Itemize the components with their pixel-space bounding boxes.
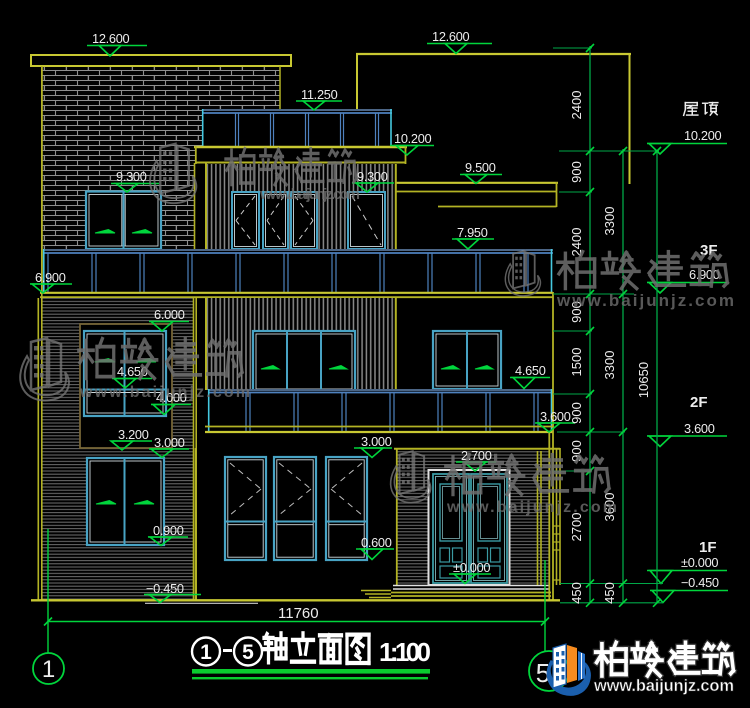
- svg-text:1:100: 1:100: [379, 637, 431, 667]
- svg-text:11.250: 11.250: [301, 87, 338, 102]
- svg-text:5: 5: [242, 641, 254, 664]
- svg-text:0.900: 0.900: [153, 523, 184, 538]
- svg-text:3.200: 3.200: [118, 427, 149, 442]
- svg-text:2400: 2400: [569, 91, 584, 120]
- svg-text:10.200: 10.200: [684, 128, 722, 143]
- svg-text:1500: 1500: [569, 348, 584, 377]
- svg-text:2F: 2F: [690, 394, 708, 411]
- svg-text:450: 450: [569, 582, 584, 604]
- svg-text:4.650: 4.650: [515, 363, 546, 378]
- svg-text:11760: 11760: [278, 605, 319, 622]
- svg-text:3.600: 3.600: [684, 421, 715, 436]
- svg-text:10650: 10650: [636, 362, 651, 398]
- svg-text:1F: 1F: [699, 539, 717, 556]
- svg-text:3300: 3300: [602, 351, 617, 380]
- svg-text:3.600: 3.600: [540, 409, 571, 424]
- svg-text:3300: 3300: [602, 207, 617, 236]
- svg-text:2700: 2700: [569, 513, 584, 542]
- svg-text:www.baijunjz.com: www.baijunjz.com: [593, 677, 734, 695]
- svg-text:6.900: 6.900: [35, 270, 66, 285]
- svg-text:www.baijunjz.com: www.baijunjz.com: [259, 186, 360, 203]
- svg-text:3.000: 3.000: [154, 435, 185, 450]
- svg-text:9.300: 9.300: [116, 169, 147, 184]
- svg-text:12.600: 12.600: [92, 31, 130, 46]
- svg-text:900: 900: [569, 161, 584, 183]
- svg-text:6.000: 6.000: [154, 307, 185, 322]
- svg-text:−0.450: −0.450: [681, 575, 719, 590]
- svg-text:1: 1: [42, 656, 55, 683]
- svg-text:450: 450: [602, 582, 617, 604]
- svg-text:±0.000: ±0.000: [681, 555, 718, 570]
- svg-text:9.500: 9.500: [465, 160, 496, 175]
- svg-text:3.000: 3.000: [361, 434, 392, 449]
- svg-text:0.600: 0.600: [361, 535, 392, 550]
- svg-text:±0.000: ±0.000: [453, 560, 490, 575]
- svg-text:9.300: 9.300: [357, 169, 388, 184]
- svg-text:1: 1: [200, 641, 212, 664]
- svg-text:7.950: 7.950: [457, 225, 488, 240]
- svg-text:10.200: 10.200: [394, 131, 432, 146]
- svg-text:6.900: 6.900: [689, 267, 720, 282]
- svg-text:900: 900: [569, 402, 584, 424]
- svg-text:12.600: 12.600: [432, 29, 470, 44]
